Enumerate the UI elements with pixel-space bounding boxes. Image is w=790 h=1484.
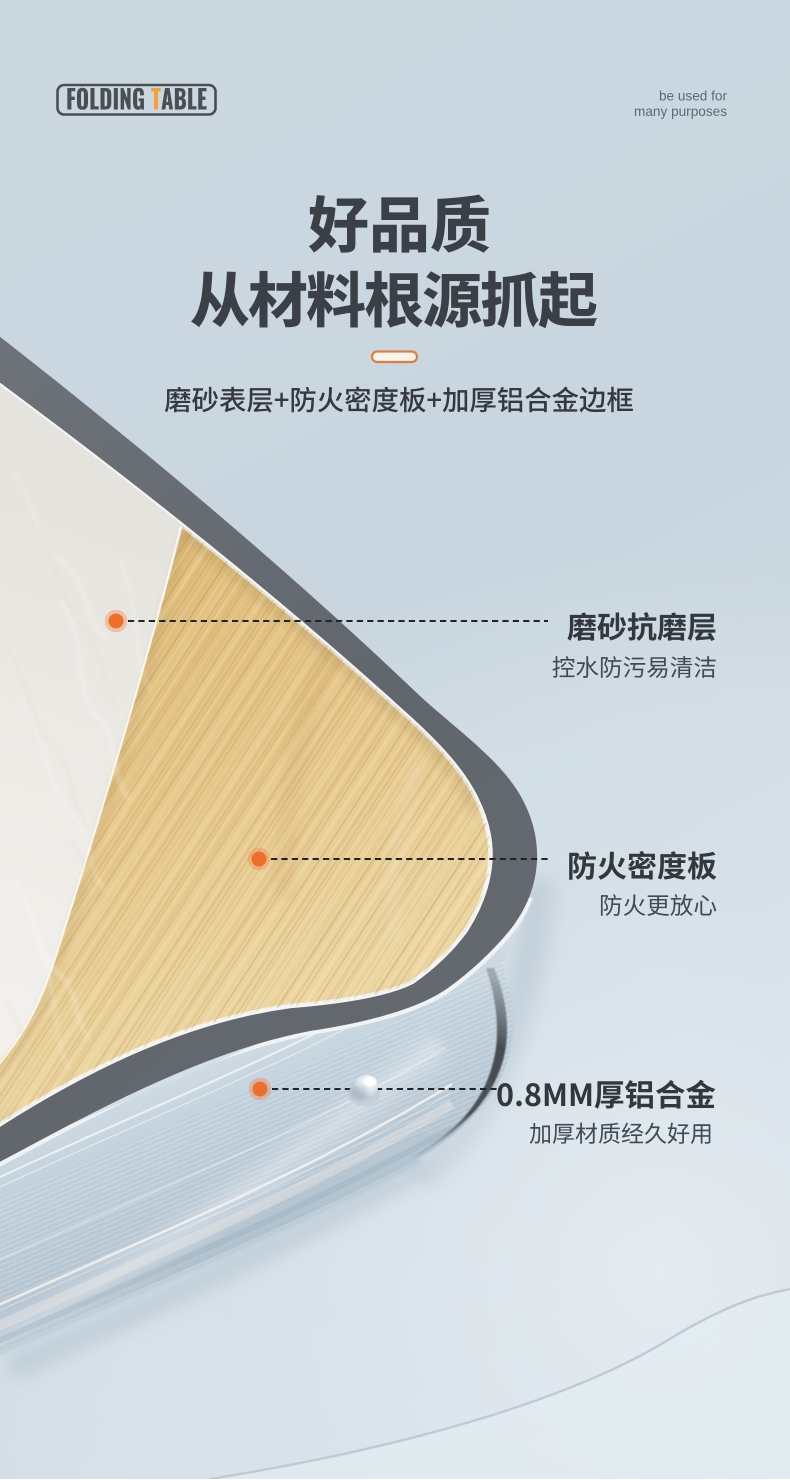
svg-text:be used for: be used for bbox=[659, 89, 727, 104]
svg-text:many purposes: many purposes bbox=[634, 104, 727, 119]
